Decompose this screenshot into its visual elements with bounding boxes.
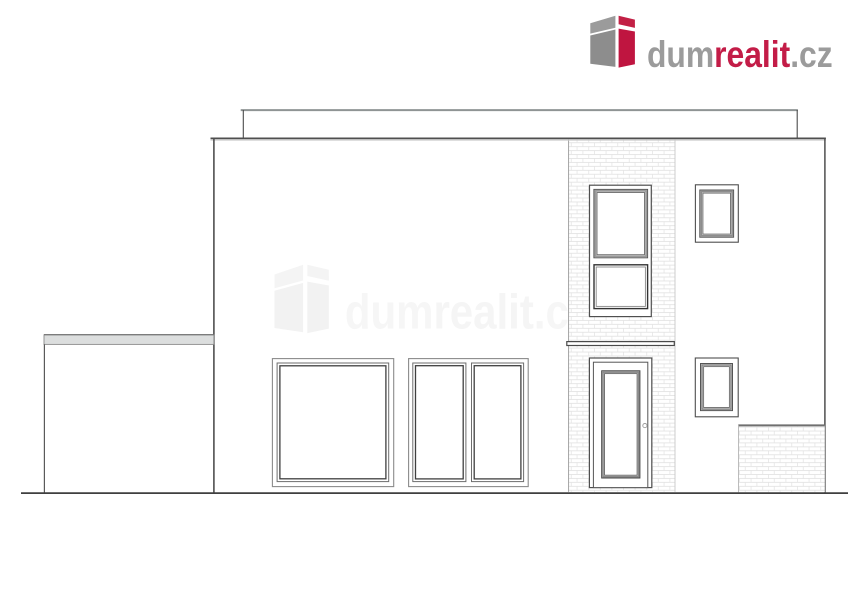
svg-text:dumrealit.cz: dumrealit.cz — [647, 35, 833, 76]
svg-text:dumrealit.cz: dumrealit.cz — [345, 284, 590, 339]
